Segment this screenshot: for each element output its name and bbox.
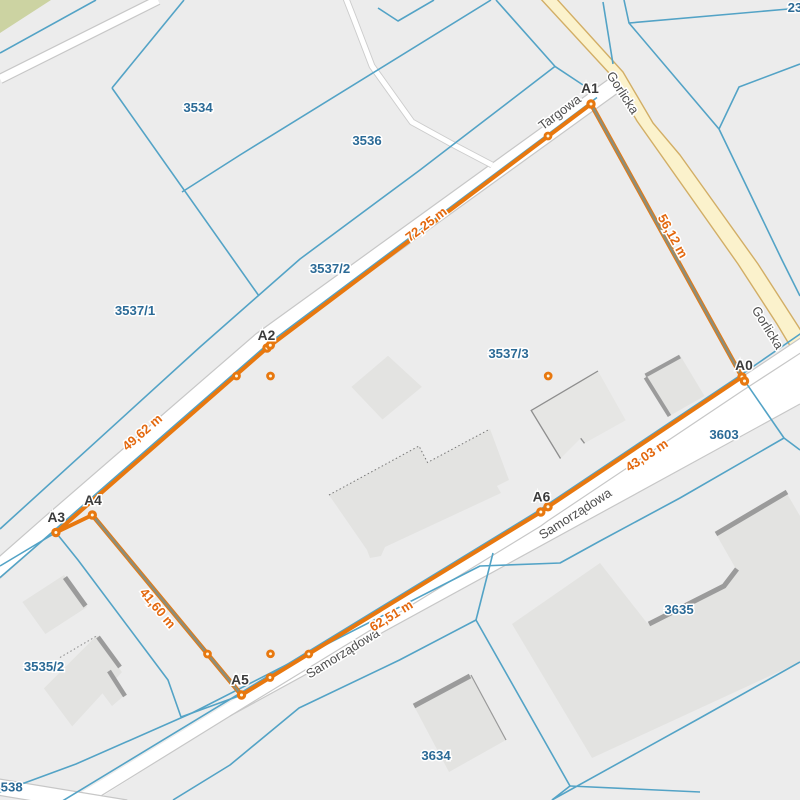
svg-text:3537/1: 3537/1 [115, 303, 155, 318]
svg-text:3635: 3635 [664, 602, 693, 617]
svg-text:A5: A5 [231, 673, 249, 688]
svg-text:A0: A0 [735, 358, 753, 373]
svg-text:3538: 3538 [0, 780, 23, 795]
svg-text:3537/2: 3537/2 [310, 261, 350, 276]
svg-text:A3: A3 [47, 510, 65, 525]
svg-text:3536: 3536 [352, 133, 381, 148]
svg-text:3537/3: 3537/3 [488, 346, 528, 361]
svg-text:3534: 3534 [183, 100, 213, 115]
svg-text:A6: A6 [533, 490, 551, 505]
svg-text:A1: A1 [581, 81, 599, 96]
svg-text:3535/2: 3535/2 [24, 659, 64, 674]
svg-text:23: 23 [788, 0, 800, 15]
svg-text:3634: 3634 [421, 748, 451, 763]
svg-text:A2: A2 [258, 328, 276, 343]
svg-text:A4: A4 [84, 493, 102, 508]
svg-text:3603: 3603 [709, 427, 738, 442]
